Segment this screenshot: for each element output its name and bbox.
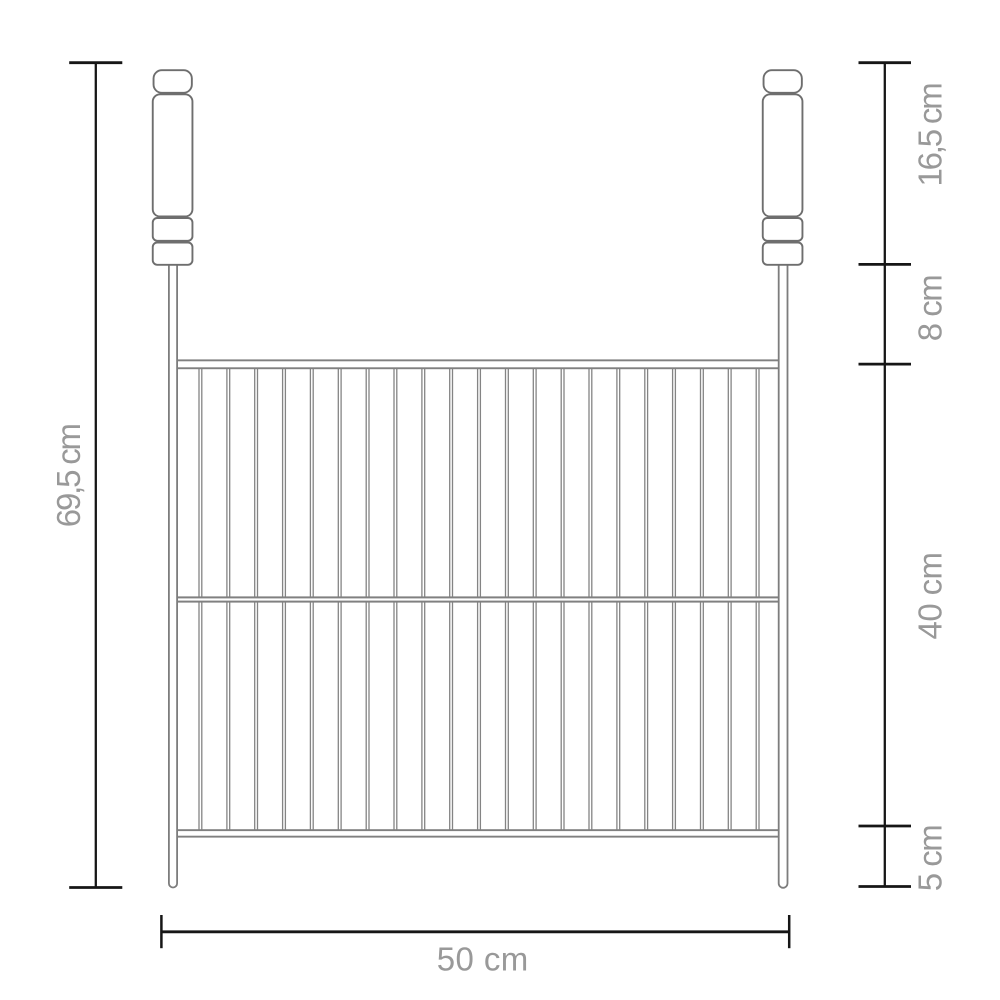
svg-text:5 cm: 5 cm: [912, 826, 949, 892]
svg-text:16,5 cm: 16,5 cm: [912, 84, 949, 187]
svg-text:69,5 cm: 69,5 cm: [50, 425, 87, 528]
svg-text:40 cm: 40 cm: [912, 553, 949, 640]
svg-text:50 cm: 50 cm: [437, 941, 529, 978]
svg-text:8 cm: 8 cm: [912, 276, 949, 342]
